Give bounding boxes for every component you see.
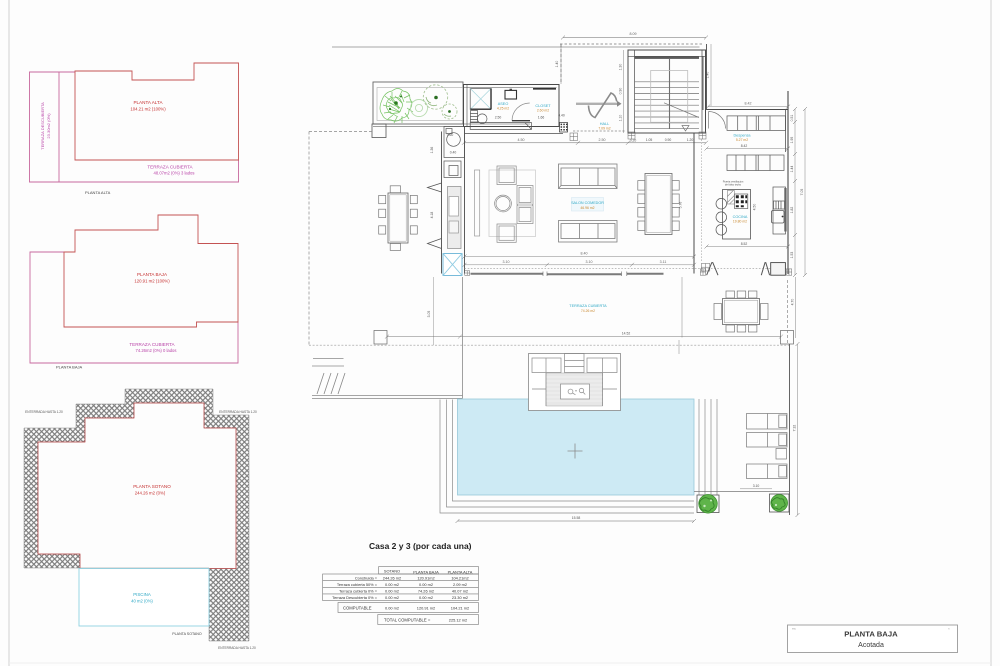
- svg-text:ENTERRADA HASTA 1.20: ENTERRADA HASTA 1.20: [218, 646, 256, 650]
- svg-text:PLANTA BAJA: PLANTA BAJA: [56, 365, 82, 370]
- svg-text:4.70: 4.70: [791, 299, 795, 306]
- svg-text:120.91 m2: 120.91 m2: [417, 606, 435, 611]
- svg-text:15.58: 15.58: [572, 516, 581, 520]
- svg-text:5.27 m2: 5.27 m2: [736, 138, 748, 142]
- svg-text:SOTANO: SOTANO: [384, 569, 400, 574]
- svg-text:1.66: 1.66: [538, 116, 545, 120]
- svg-text:0.00 m2: 0.00 m2: [385, 589, 399, 594]
- svg-text:ENTERRADA HASTA 1.20: ENTERRADA HASTA 1.20: [219, 410, 257, 414]
- svg-text:0.20: 0.20: [630, 138, 637, 142]
- svg-text:74.26m2 (0%) 0 lados: 74.26m2 (0%) 0 lados: [136, 348, 177, 353]
- svg-text:19.80 m2: 19.80 m2: [733, 220, 747, 224]
- svg-text:PLANTA ALTA: PLANTA ALTA: [133, 100, 163, 105]
- svg-text:4.50: 4.50: [753, 204, 757, 211]
- svg-text:Terraza Descubierta 0% =: Terraza Descubierta 0% =: [332, 595, 378, 600]
- svg-text:0.90: 0.90: [618, 88, 622, 95]
- svg-text:PLANTA ALTA: PLANTA ALTA: [85, 190, 111, 195]
- svg-text:PLANTA BAJA: PLANTA BAJA: [413, 570, 439, 575]
- svg-text:5.76: 5.76: [679, 202, 683, 209]
- svg-text:TERRAZA DESCUBIERTA: TERRAZA DESCUBIERTA: [40, 102, 45, 150]
- svg-text:1.10: 1.10: [618, 115, 622, 122]
- svg-text:0.60: 0.60: [447, 133, 454, 137]
- svg-text:HALL: HALL: [600, 122, 610, 126]
- svg-text:TOTAL COMPUTABLE =: TOTAL COMPUTABLE =: [384, 618, 431, 623]
- svg-text:SALON COMEDOR: SALON COMEDOR: [571, 201, 604, 205]
- svg-text:104.21 m2: 104.21 m2: [451, 606, 469, 611]
- svg-text:3.10: 3.10: [503, 260, 510, 264]
- svg-text:3.05: 3.05: [427, 311, 431, 318]
- svg-text:1.95: 1.95: [790, 137, 794, 144]
- svg-text:PLANTA SOTANO: PLANTA SOTANO: [172, 632, 202, 636]
- svg-text:Terraza cubierta 0% =: Terraza cubierta 0% =: [339, 589, 378, 594]
- svg-text:Casa 2 y 3 (por cada una): Casa 2 y 3 (por cada una): [369, 541, 472, 551]
- svg-text:0.51: 0.51: [790, 115, 794, 122]
- svg-text:PLANTA BAJA: PLANTA BAJA: [137, 272, 168, 277]
- svg-text:0.40: 0.40: [450, 151, 457, 155]
- svg-text:7.32: 7.32: [793, 425, 797, 432]
- svg-text:1.30: 1.30: [618, 64, 622, 71]
- svg-text:74.26 m2: 74.26 m2: [418, 589, 434, 594]
- svg-text:2.50: 2.50: [599, 138, 606, 142]
- svg-text:PLANTA SOTANO: PLANTA SOTANO: [133, 484, 171, 489]
- svg-text:3.10: 3.10: [753, 484, 760, 488]
- svg-text:0.00 m2: 0.00 m2: [385, 582, 399, 587]
- svg-text:8.52: 8.52: [741, 242, 748, 246]
- svg-text:PISCINA: PISCINA: [133, 592, 151, 597]
- svg-text:PLANTA ALTA: PLANTA ALTA: [448, 570, 473, 575]
- svg-text:23.30m2 (0%): 23.30m2 (0%): [46, 113, 51, 139]
- svg-text:0.00 m2: 0.00 m2: [385, 606, 399, 611]
- svg-text:1.82: 1.82: [790, 207, 794, 214]
- svg-text:1.20: 1.20: [687, 138, 694, 142]
- svg-text:0.90: 0.90: [665, 138, 672, 142]
- svg-text:ASEO: ASEO: [498, 102, 509, 106]
- svg-text:TERRAZA CUBIERTA: TERRAZA CUBIERTA: [147, 165, 193, 170]
- svg-text:1.53: 1.53: [790, 252, 794, 259]
- svg-text:4.25 m2: 4.25 m2: [497, 107, 509, 111]
- svg-text:3.11: 3.11: [660, 260, 667, 264]
- svg-text:3.10: 3.10: [586, 260, 593, 264]
- svg-text:4.50: 4.50: [518, 138, 525, 142]
- svg-text:120.91m2: 120.91m2: [417, 575, 434, 580]
- svg-text:104.21m2: 104.21m2: [451, 575, 468, 580]
- svg-text:1.05: 1.05: [646, 138, 653, 142]
- svg-text:48.07m2 (0%) 3 lados: 48.07m2 (0%) 3 lados: [154, 171, 195, 176]
- svg-text:104.21 m2 (100%): 104.21 m2 (100%): [130, 107, 166, 112]
- svg-text:1.44: 1.44: [790, 166, 794, 173]
- svg-text:ENTERRADA HASTA 1.20: ENTERRADA HASTA 1.20: [25, 410, 63, 414]
- svg-text:8.42: 8.42: [745, 102, 752, 106]
- svg-text:Construida =: Construida =: [355, 575, 378, 580]
- svg-text:46.96 m2: 46.96 m2: [580, 206, 594, 210]
- svg-text:Terraza cubierta 50% =: Terraza cubierta 50% =: [337, 582, 378, 587]
- svg-text:120.91 m2 (100%): 120.91 m2 (100%): [134, 279, 170, 284]
- svg-text:7.09 m2: 7.09 m2: [598, 127, 610, 131]
- svg-text:2.60 m2: 2.60 m2: [537, 109, 549, 113]
- svg-text:CLOSET: CLOSET: [535, 104, 551, 108]
- svg-text:0.00 m2: 0.00 m2: [385, 595, 399, 600]
- svg-text:0.40: 0.40: [558, 114, 565, 118]
- svg-text:COMPUTABLE: COMPUTABLE: [343, 606, 372, 611]
- svg-text:0.00 m2: 0.00 m2: [419, 595, 433, 600]
- svg-text:244.26 m2 (0%): 244.26 m2 (0%): [135, 491, 166, 496]
- svg-text:1.40: 1.40: [555, 61, 559, 68]
- svg-text:2.50: 2.50: [495, 116, 502, 120]
- svg-text:4.18: 4.18: [430, 212, 434, 219]
- svg-text:23.30 m2: 23.30 m2: [452, 595, 468, 600]
- svg-text:de falso techo: de falso techo: [725, 183, 742, 187]
- svg-text:8.09: 8.09: [630, 32, 637, 36]
- svg-text:Acotada: Acotada: [858, 642, 884, 649]
- svg-text:74.26 m2: 74.26 m2: [581, 309, 595, 313]
- svg-text:244.26 m2: 244.26 m2: [383, 575, 401, 580]
- svg-text:COCINA: COCINA: [733, 215, 748, 219]
- svg-text:TERRAZA CUBIERTA: TERRAZA CUBIERTA: [129, 342, 175, 347]
- svg-text:225.12 m2: 225.12 m2: [449, 618, 467, 623]
- svg-text:8.42: 8.42: [741, 144, 748, 148]
- svg-text:40.07 m2: 40.07 m2: [452, 589, 468, 594]
- svg-text:Despensa: Despensa: [733, 134, 751, 138]
- svg-text:PLANTA BAJA: PLANTA BAJA: [844, 630, 898, 639]
- svg-text:8.40: 8.40: [581, 252, 588, 256]
- svg-text:2.09 m2: 2.09 m2: [453, 582, 467, 587]
- svg-text:40 m2 (0%): 40 m2 (0%): [131, 599, 153, 604]
- svg-text:1.36: 1.36: [430, 147, 434, 154]
- svg-text:14.52: 14.52: [622, 332, 631, 336]
- svg-text:TERRAZA CUBIERTA: TERRAZA CUBIERTA: [569, 304, 607, 308]
- svg-text:0.00 m2: 0.00 m2: [419, 582, 433, 587]
- svg-text:7.05: 7.05: [800, 189, 804, 196]
